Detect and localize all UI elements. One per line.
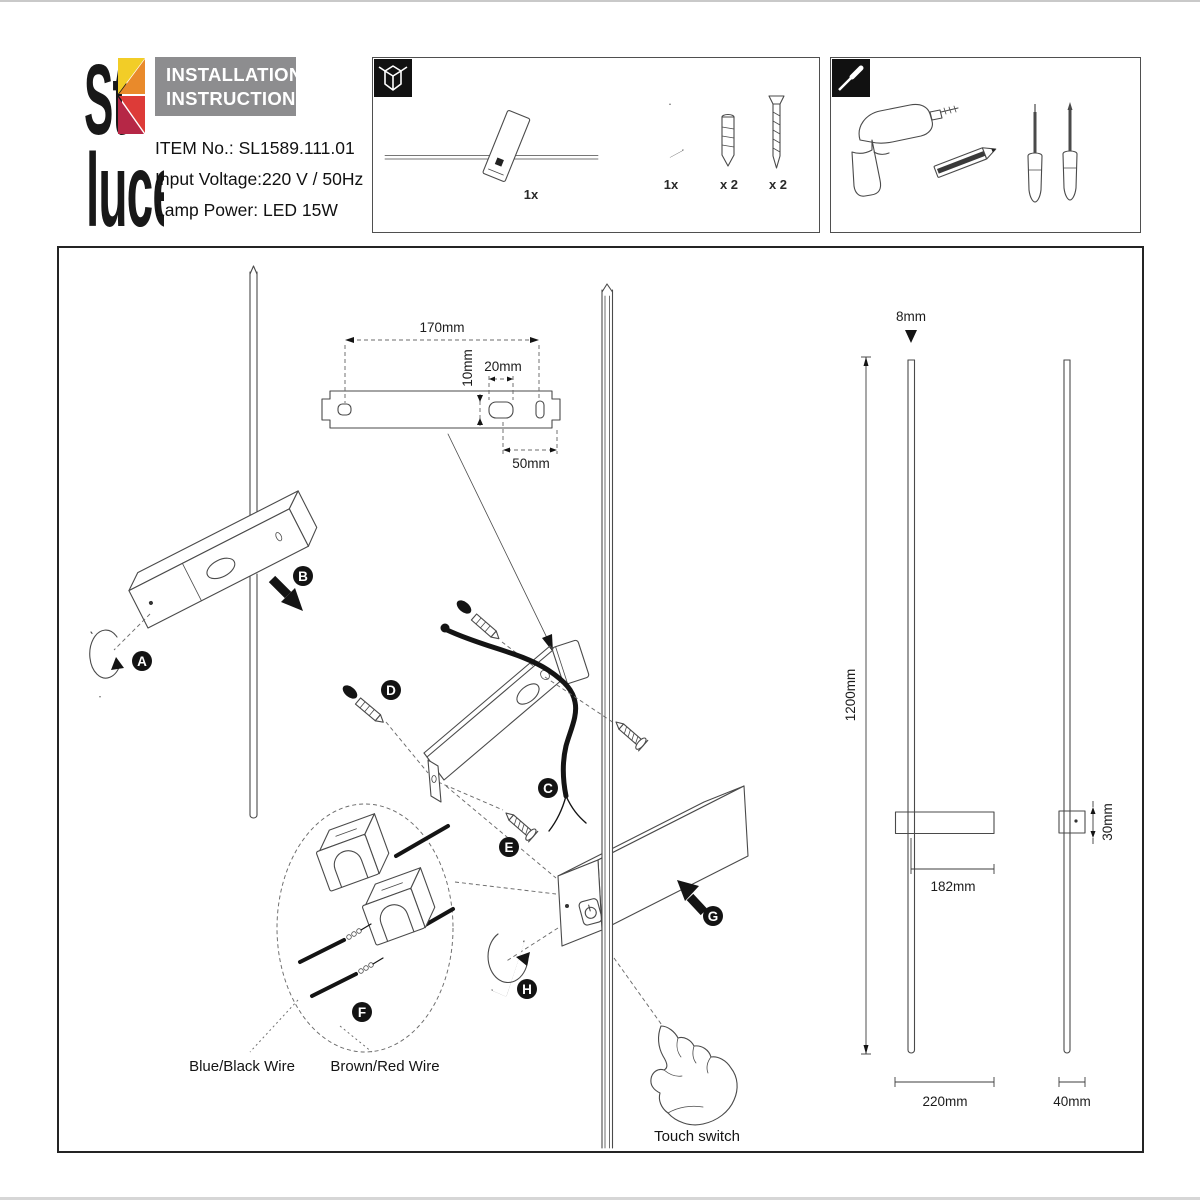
lamp-power: Lamp Power: LED 15W	[155, 195, 363, 226]
package-contents-box	[372, 57, 820, 233]
title-box: INSTALLATION INSTRUCTIONS	[155, 57, 296, 116]
instruction-sheet: St luce INSTALLATION INSTRUCTIONS ITEM N…	[0, 0, 1200, 1200]
installation-diagram-box	[57, 246, 1144, 1153]
brand-logo-bottom-text: luce	[86, 133, 164, 240]
input-voltage: Input Voltage:220 V / 50Hz	[155, 164, 363, 195]
item-number: ITEM No.: SL1589.111.01	[155, 133, 363, 164]
required-tools-box	[830, 57, 1141, 233]
brand-logo: St luce	[84, 48, 164, 240]
page-top-edge	[0, 0, 1200, 2]
title-line1: INSTALLATION	[166, 63, 296, 87]
product-info: ITEM No.: SL1589.111.01 Input Voltage:22…	[155, 133, 363, 226]
title-line2: INSTRUCTIONS	[166, 87, 296, 111]
